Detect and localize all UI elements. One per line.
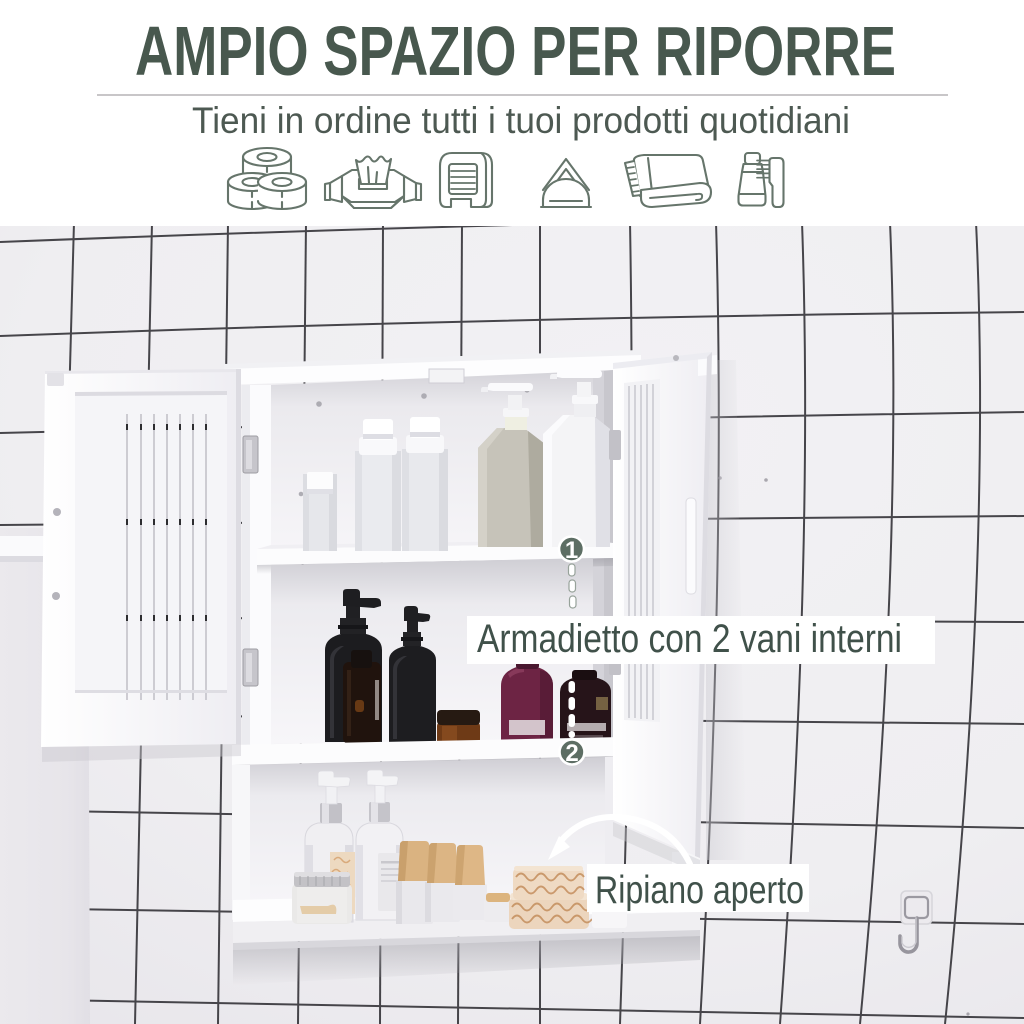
svg-text:2: 2 xyxy=(565,740,578,767)
svg-text:Ripiano aperto: Ripiano aperto xyxy=(595,869,804,912)
svg-text:1: 1 xyxy=(565,537,578,564)
svg-text:AMPIO SPAZIO PER RIPORRE: AMPIO SPAZIO PER RIPORRE xyxy=(135,12,896,90)
svg-text:Tieni in ordine tutti i tuoi p: Tieni in ordine tutti i tuoi prodotti qu… xyxy=(192,100,850,141)
svg-text:Armadietto con 2 vani interni: Armadietto con 2 vani interni xyxy=(477,617,902,661)
